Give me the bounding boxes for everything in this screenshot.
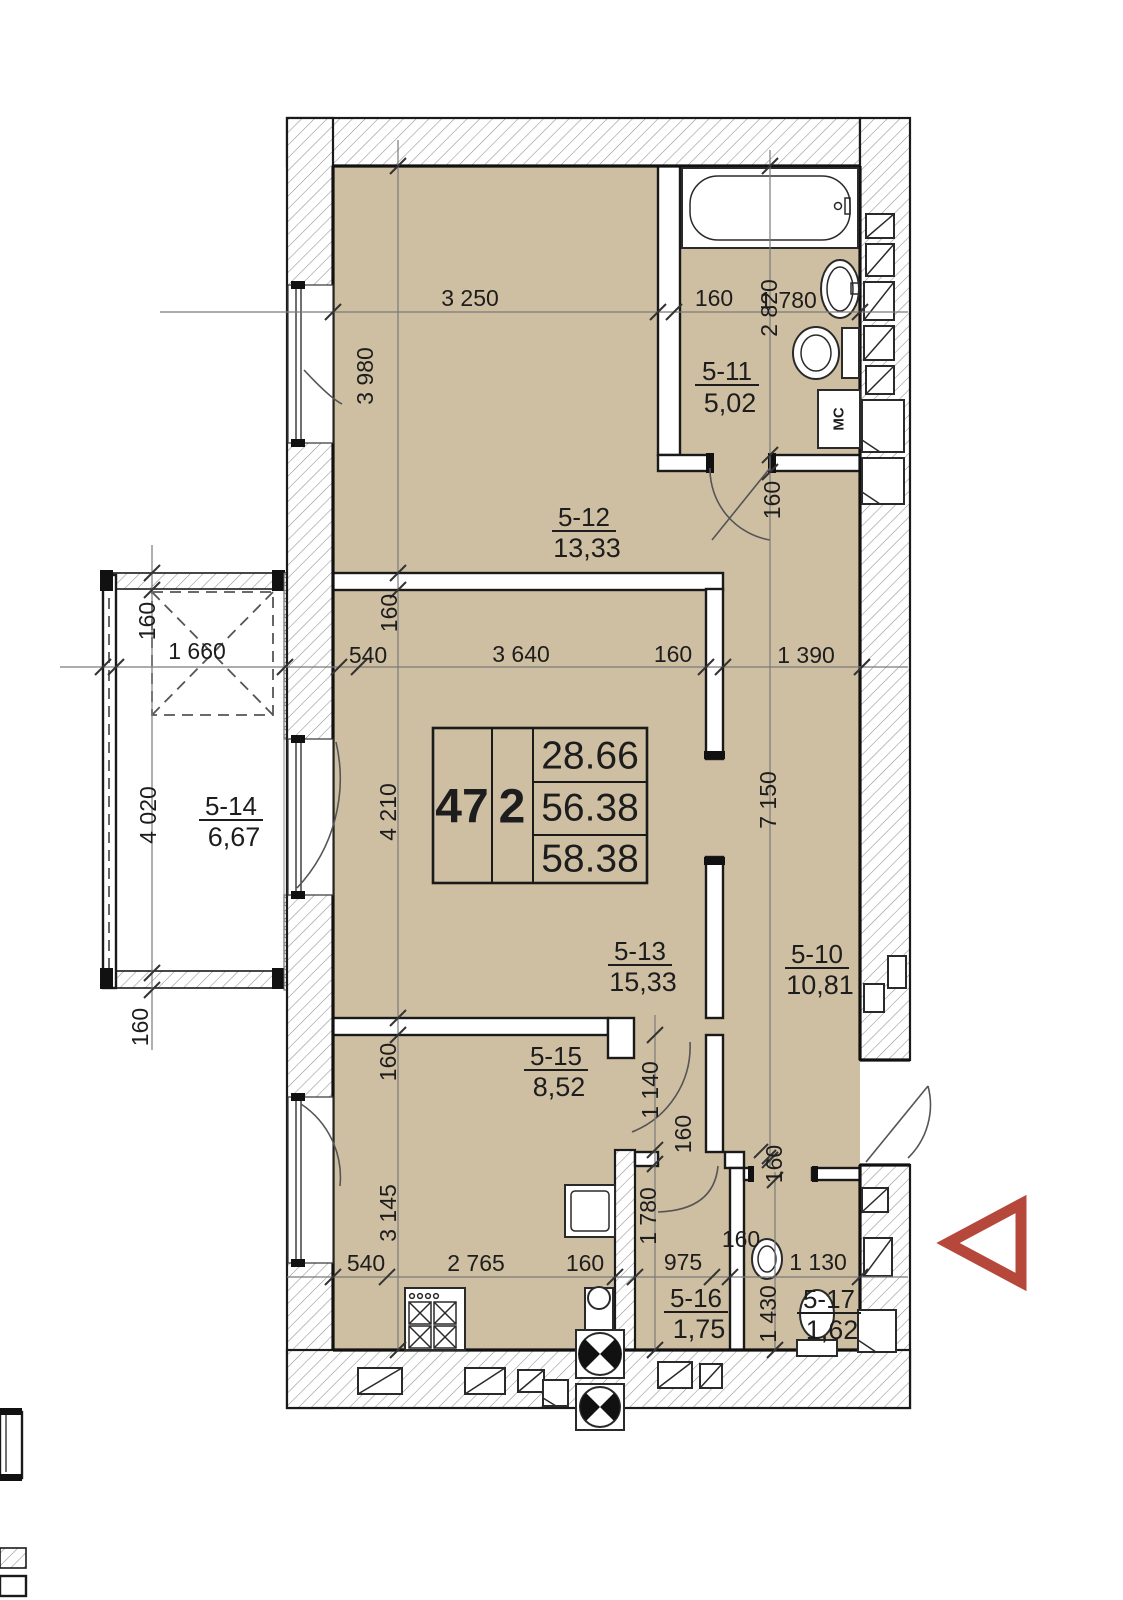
dim-label: 160 <box>761 1145 787 1183</box>
room-label-5-15: 5-15 8,52 <box>524 1041 588 1102</box>
dim-label: 160 <box>722 1226 760 1252</box>
dim-label: 1 660 <box>168 638 226 664</box>
dim-label: 160 <box>654 641 692 667</box>
dim-label: 4 020 <box>135 786 161 844</box>
bathroom-sink <box>821 260 859 318</box>
area-total: 58.38 <box>541 838 639 881</box>
washer-label: МС <box>831 407 848 430</box>
dim-label: 7 150 <box>755 771 781 829</box>
dim-label: 1 140 <box>637 1061 663 1119</box>
dim-label: 160 <box>695 285 733 311</box>
dim-label: 3 145 <box>375 1184 401 1242</box>
room-id: 5-15 <box>530 1041 582 1071</box>
floor-plan-svg: МС <box>0 0 1123 1600</box>
balcony-door-kitchen <box>288 1093 340 1267</box>
balcony <box>100 570 295 990</box>
wall-512-513 <box>333 573 723 590</box>
room-label-5-17: 5-17 1,62 <box>797 1284 861 1345</box>
dim-label: 160 <box>670 1115 696 1153</box>
room-label-5-14: 5-14 6,67 <box>199 791 263 852</box>
wall-513-corridor-a <box>706 589 723 759</box>
room-id: 5-12 <box>558 502 610 532</box>
wall-bath-bottom-left <box>658 455 712 471</box>
dim-label: 160 <box>375 1043 401 1081</box>
dim-label: 1 390 <box>777 642 835 668</box>
room-id: 5-17 <box>803 1284 855 1314</box>
dim-label: 540 <box>349 642 387 668</box>
dim-label: 3 250 <box>441 285 499 311</box>
dim-label: 975 <box>664 1249 702 1275</box>
floor-plan: МС <box>0 0 1123 1600</box>
bathroom-toilet <box>793 327 859 379</box>
room-area: 8,52 <box>533 1072 586 1102</box>
room-area: 13,33 <box>553 533 621 563</box>
room-label-5-16: 5-16 1,75 <box>664 1283 728 1344</box>
room-id: 5-14 <box>205 791 257 821</box>
neighbor-fragments <box>0 1408 26 1596</box>
dim-label: 160 <box>759 481 785 519</box>
area-living: 28.66 <box>541 735 639 778</box>
room-area: 15,33 <box>609 967 677 997</box>
wall-passage <box>706 1035 723 1152</box>
room-area: 6,67 <box>208 822 261 852</box>
room-area: 5,02 <box>704 388 757 418</box>
wall-shaft <box>615 1150 635 1350</box>
dim-label: 160 <box>566 1250 604 1276</box>
room-area: 1,62 <box>806 1315 859 1345</box>
dim-label: 2 765 <box>447 1250 505 1276</box>
room-id: 5-10 <box>791 939 843 969</box>
area-apartment: 56.38 <box>541 787 639 830</box>
kitchen-sink <box>565 1185 615 1237</box>
room-id: 5-11 <box>702 356 752 386</box>
room-area: 1,75 <box>673 1314 726 1344</box>
dim-label: 160 <box>134 602 160 640</box>
door-jamb <box>608 1018 634 1058</box>
unit-number: 47 <box>435 781 488 834</box>
wall-516-top-right <box>725 1152 744 1168</box>
room-count: 2 <box>499 781 526 834</box>
wall-513-corridor-b <box>706 857 723 1018</box>
wall-513-kitchen <box>333 1018 608 1035</box>
wall-516-517 <box>730 1168 744 1350</box>
dim-label: 1 130 <box>789 1249 847 1275</box>
room-id: 5-13 <box>614 936 666 966</box>
dim-label: 3 980 <box>352 347 378 405</box>
washing-machine: МС <box>818 390 860 448</box>
dim-label: 160 <box>376 594 402 632</box>
dim-label: 160 <box>127 1008 153 1046</box>
dim-label: 1 780 <box>635 1187 661 1245</box>
wall-517-top-b <box>812 1168 860 1180</box>
room-id: 5-16 <box>670 1283 722 1313</box>
entry-arrow <box>948 1204 1021 1282</box>
balcony-door-513 <box>288 735 340 899</box>
water-heater <box>585 1287 613 1332</box>
wall-bath-bottom-right <box>774 455 860 471</box>
dim-label: 1 430 <box>755 1285 781 1343</box>
dim-label: 4 210 <box>375 783 401 841</box>
room-area: 10,81 <box>786 970 854 1000</box>
dim-label: 3 640 <box>492 641 550 667</box>
balcony-top-wall <box>103 573 285 589</box>
dim-label: 2 820 <box>756 279 782 337</box>
entrance-door <box>860 1060 930 1165</box>
dim-label: 540 <box>347 1250 385 1276</box>
kitchen-stove <box>405 1288 465 1350</box>
wall-top <box>287 118 860 166</box>
balcony-bottom-wall <box>103 971 285 988</box>
